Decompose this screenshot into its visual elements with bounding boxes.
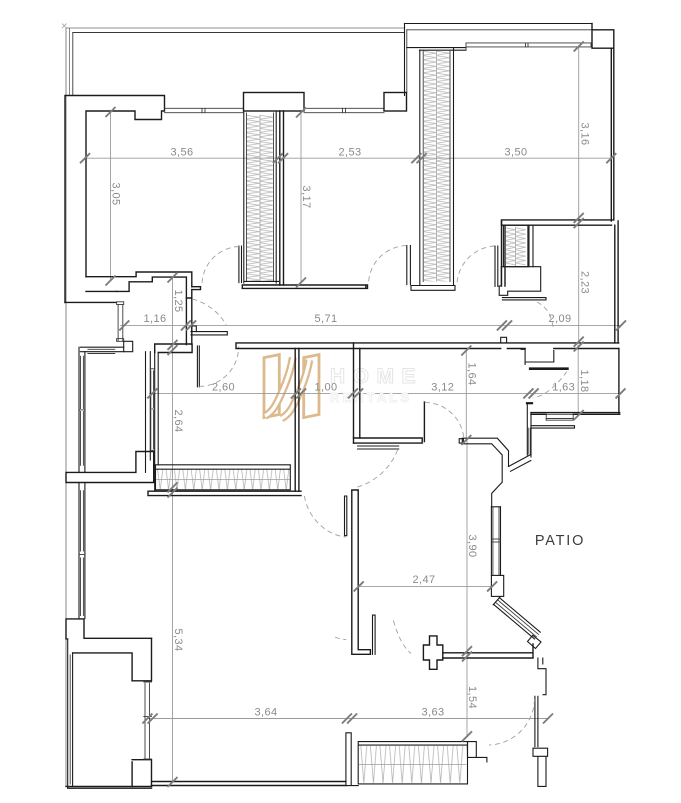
svg-text:3,56: 3,56 [170,147,193,159]
svg-text:1,25: 1,25 [172,289,184,312]
svg-text:HOME: HOME [330,365,423,388]
svg-text:PATIO: PATIO [535,533,585,549]
svg-text:3,64: 3,64 [254,706,277,718]
svg-text:1,64: 1,64 [466,362,478,385]
svg-text:3,17: 3,17 [300,185,312,208]
svg-text:2,09: 2,09 [548,313,571,325]
svg-text:3,90: 3,90 [466,534,478,557]
svg-text:2,47: 2,47 [412,574,435,586]
svg-text:2,64: 2,64 [172,409,184,432]
svg-text:3,16: 3,16 [579,122,591,145]
svg-text:5,34: 5,34 [172,628,184,651]
svg-text:1,16: 1,16 [143,313,166,325]
svg-text:1,00: 1,00 [314,381,337,393]
svg-text:3,05: 3,05 [110,182,122,205]
svg-text:2,23: 2,23 [579,271,591,294]
svg-text:3,63: 3,63 [421,706,444,718]
svg-text:2,60: 2,60 [212,381,235,393]
svg-text:1,54: 1,54 [466,686,478,709]
svg-text:RENTALS: RENTALS [330,390,412,405]
svg-text:1,63: 1,63 [552,381,575,393]
svg-text:3,12: 3,12 [431,381,454,393]
svg-text:2,53: 2,53 [338,147,361,159]
svg-text:3,50: 3,50 [504,147,527,159]
svg-text:5,71: 5,71 [314,313,337,325]
svg-text:1,18: 1,18 [578,369,590,392]
